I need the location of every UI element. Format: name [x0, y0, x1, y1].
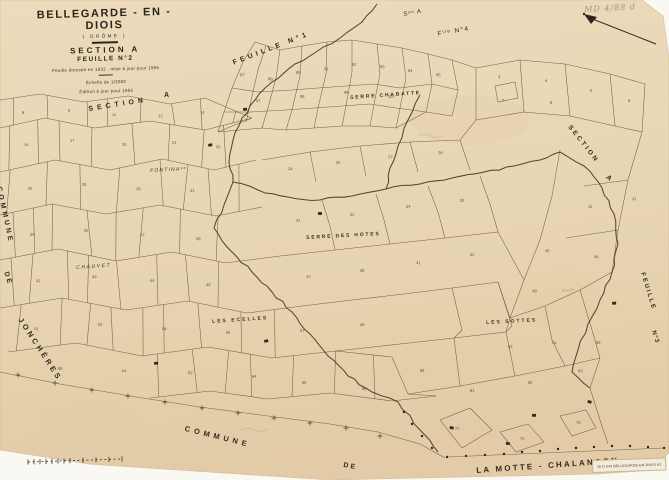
revision-note: Feuille dressée en 1832 , mise à jour po…	[18, 64, 194, 74]
cadastral-map-sheet: 8911121415171821222526283134353738414344…	[0, 0, 669, 480]
scale-note: Échelle de 1/2500	[18, 77, 194, 87]
page-title: BELLEGARDE - EN - DIOIS	[16, 5, 193, 34]
parcel-number: 15	[24, 142, 29, 147]
note-divider	[99, 74, 113, 75]
parcel-number: 58	[360, 322, 365, 327]
archive-stamp-text: 26 D 043 BELLEGARDE-EN-DIOIS A2	[597, 462, 662, 468]
archive-stamp: 26 D 043 BELLEGARDE-EN-DIOIS A2	[592, 457, 666, 473]
map-title-block: BELLEGARDE - EN - DIOIS ( DRÔME ) SECTIO…	[16, 5, 194, 96]
parcel-number: 61	[122, 368, 127, 373]
title-divider	[92, 41, 118, 44]
section-label-left-a: A	[164, 92, 171, 99]
